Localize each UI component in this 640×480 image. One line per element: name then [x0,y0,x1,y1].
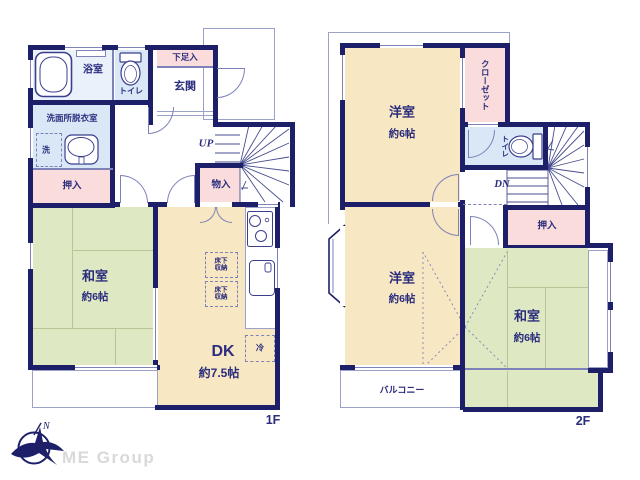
window [258,202,278,207]
label-oshiire-2f: 押入 [537,222,556,233]
label-bathroom: 浴室 [83,64,103,76]
hall-dotted-line [463,204,507,205]
label-bedroom2-size: 約6帖 [389,293,416,305]
floorplan-canvas: 浴室 トイレ 下足入 玄関 洗面所脱衣室 洗 押入 物入 UP 和室 約6帖 D… [0,0,640,480]
label-washroom: 洗面所脱衣室 [46,114,97,124]
wall [543,122,548,170]
stove-icon [246,210,275,249]
window [340,55,345,100]
tatami-line [72,250,153,251]
shoe-storage-divider [157,66,213,68]
veranda-outline-1f [32,370,158,408]
compass-icon: N [10,417,82,477]
label-floor2: 2F [576,414,591,428]
wall [28,100,153,105]
closet-sliding-door [460,58,465,108]
sliding-door [153,288,158,360]
label-washitsu-1f-size: 約6帖 [82,291,109,303]
window [65,45,102,50]
oshiire-2f-divider [508,245,588,248]
wall [195,163,200,207]
eave-line-right [509,32,510,43]
tatami-line [507,371,508,407]
label-bedroom1: 洋室 [389,106,415,121]
underfloor-line1: 床下 [215,287,228,294]
bath-counter [76,50,106,57]
brand-logo-text: ME Group [62,448,155,468]
label-oshiire-1f: 押入 [62,182,81,193]
wall [110,100,115,207]
window [28,128,33,158]
wall [275,205,280,410]
wall [505,43,510,127]
label-washitsu-1f: 和室 [82,270,108,285]
window [468,122,498,127]
wall [340,43,510,48]
tatami-line [115,329,116,365]
label-fridge: 冷 [256,343,264,352]
label-stairs-down: DN [494,179,509,191]
toilet-1f-door [148,107,174,134]
room-washitsu-1f [33,207,153,365]
label-entrance: 玄関 [174,81,196,94]
eave-line-left [328,32,329,224]
label-balcony: バルコニー [380,385,425,395]
window [118,45,145,50]
label-floor1: 1F [266,413,281,427]
window [75,365,157,370]
washitsu-1f-door [120,175,148,203]
label-washer: 洗 [42,145,50,154]
label-washitsu-2f: 和室 [514,310,540,325]
wall [155,405,280,410]
label-washitsu-2f-size: 約6帖 [514,332,541,344]
bathtub-icon [34,51,74,99]
window [28,243,33,269]
wall [213,122,295,127]
label-shoe-storage: 下足入 [172,53,198,63]
bath-toilet-divider [112,50,114,100]
label-underfloor-1: 床下 収納 [215,258,228,273]
compass-north-label: N [42,421,51,432]
oshiire-divider [33,168,113,170]
wall [585,205,590,248]
window [608,310,613,352]
window [275,248,280,288]
tatami-line [72,207,73,328]
room-washitsu-2f-lower [465,370,598,407]
label-bedroom2: 洋室 [389,272,415,287]
washitsu-2f-door [470,216,499,245]
wall [28,203,115,208]
wall [195,163,243,168]
wall [460,165,548,170]
window [608,262,613,302]
bay-opening [340,226,345,306]
door-opening [430,202,458,207]
washbasin-icon [63,133,101,167]
label-dk-size: 約7.5帖 [199,367,240,381]
wall [290,122,295,207]
label-bedroom1-size: 約6帖 [389,128,416,140]
label-stairs-up: UP [199,138,214,151]
wall [463,407,603,412]
eave-line-top [328,32,510,33]
wall [598,370,603,412]
window [380,43,423,48]
kitchen-sink-icon [248,259,277,298]
window [28,60,33,88]
underfloor-line2: 収納 [215,265,228,272]
label-toilet-1f: トイレ [119,86,143,95]
engawa-outline-2f [588,250,608,368]
underfloor-line2: 収納 [215,294,228,301]
label-underfloor-2: 床下 収納 [215,287,228,302]
wall [503,205,508,248]
toilet-icon [117,51,145,87]
dk-hall-door [167,175,195,203]
tatami-line [33,328,153,329]
label-closet-2f: クローゼット [481,60,490,111]
label-dk: DK [211,343,234,361]
label-monoire: 物入 [211,181,230,192]
underfloor-line1: 床下 [215,258,228,265]
wall [460,200,465,410]
window [585,147,590,187]
wall [503,205,588,210]
label-toilet-2f: トイレ [501,135,509,158]
window [355,365,453,370]
